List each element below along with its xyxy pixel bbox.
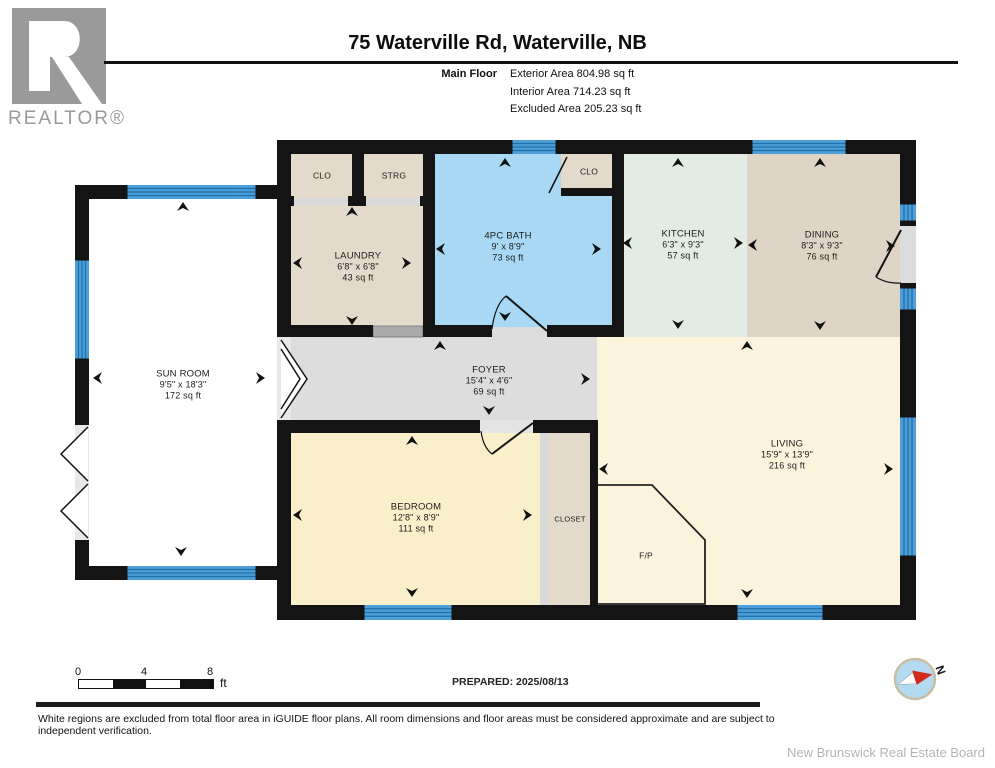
window-icon [510, 140, 558, 154]
prepared-date: PREPARED: 2025/08/13 [452, 676, 569, 688]
room-label-sun-room: SUN ROOM 9'5" x 18'3" 172 sq ft [156, 369, 210, 402]
window-icon [900, 286, 916, 312]
room-label-fireplace: F/P [639, 551, 653, 562]
room-label-kitchen: KITCHEN 6'3" x 9'3" 57 sq ft [661, 229, 704, 262]
window-icon [735, 605, 825, 620]
room-label-foyer: FOYER 15'4" x 4'6" 69 sq ft [466, 365, 513, 398]
disclaimer-text: White regions are excluded from total fl… [38, 713, 778, 737]
room-label-laundry: LAUNDRY 6'8" x 6'8" 43 sq ft [335, 251, 382, 284]
scale-tick-4: 4 [141, 666, 147, 678]
window-icon [125, 185, 258, 199]
floor-plan-page: REALTOR® 75 Waterville Rd, Waterville, N… [0, 0, 995, 768]
room-label-living: LIVING 15'9" x 13'9" 216 sq ft [761, 439, 813, 472]
footer-rule [36, 702, 760, 707]
room-label-clo-2: CLO [580, 167, 598, 178]
attribution-text: New Brunswick Real Estate Board [787, 745, 985, 760]
scale-unit: ft [220, 676, 227, 690]
room-label-clo-1: CLO [313, 171, 331, 182]
laundry-counter [373, 326, 423, 337]
window-icon [125, 566, 258, 580]
room-label-closet: CLOSET [554, 514, 585, 525]
scale-bar: 0 4 8 ft [78, 666, 214, 692]
window-icon [900, 202, 916, 223]
scale-tick-0: 0 [75, 666, 81, 678]
room-label-strg: STRG [382, 171, 406, 182]
compass-north-label: N [932, 664, 948, 677]
room-label-bath: 4PC BATH 9' x 8'9" 73 sq ft [484, 231, 531, 264]
window-icon [75, 258, 89, 361]
window-icon [362, 605, 454, 620]
window-icon [900, 415, 916, 558]
room-label-bedroom: BEDROOM 12'8" x 8'9" 111 sq ft [391, 502, 442, 535]
scale-bar-segments [78, 679, 214, 689]
compass-icon: N [888, 653, 954, 707]
scale-tick-8: 8 [207, 666, 213, 678]
room-label-dining: DINING 8'3" x 9'3" 76 sq ft [801, 230, 843, 263]
window-icon [750, 140, 848, 154]
